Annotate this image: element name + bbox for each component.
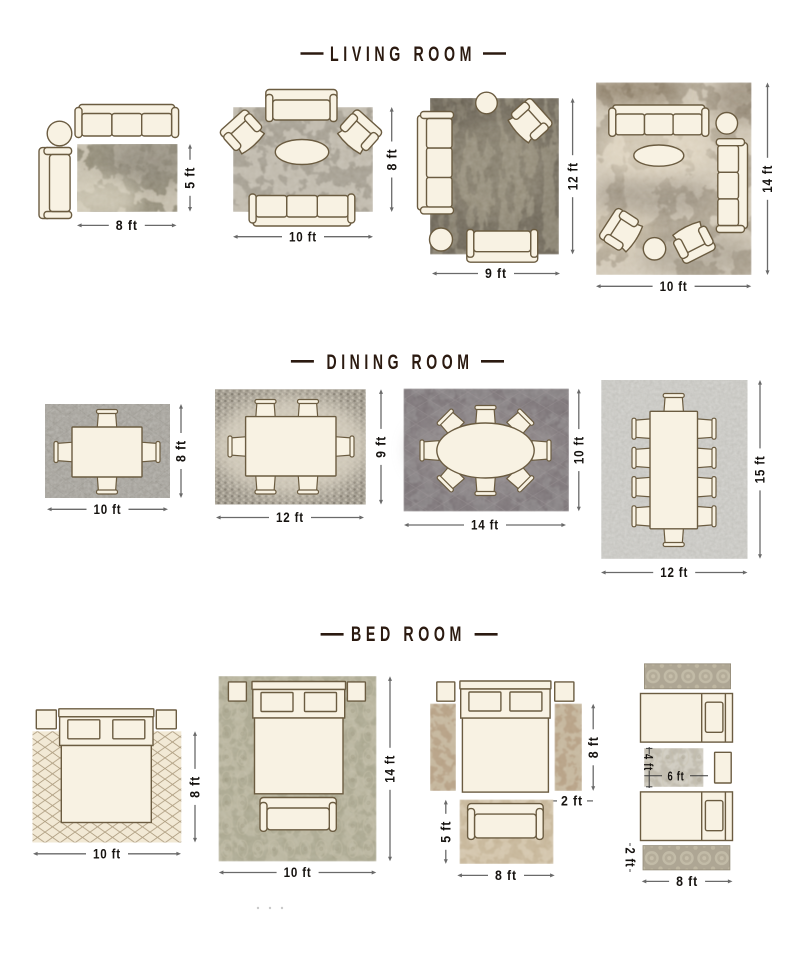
svg-text:8 ft: 8 ft <box>187 776 203 798</box>
svg-text:12 ft: 12 ft <box>276 509 304 525</box>
svg-text:14 ft: 14 ft <box>471 517 499 533</box>
svg-text:8 ft: 8 ft <box>383 149 399 171</box>
svg-text:12 ft: 12 ft <box>660 564 688 580</box>
svg-text:14 ft: 14 ft <box>759 165 775 193</box>
svg-text:DINING ROOM: DINING ROOM <box>327 350 474 374</box>
svg-text:10 ft: 10 ft <box>284 864 312 880</box>
svg-text:8 ft: 8 ft <box>173 440 189 462</box>
svg-text:2 ft: 2 ft <box>561 793 583 809</box>
svg-text:5 ft: 5 ft <box>438 821 454 843</box>
svg-text:10 ft: 10 ft <box>289 228 317 244</box>
svg-text:15 ft: 15 ft <box>752 455 768 483</box>
svg-text:9 ft: 9 ft <box>373 436 389 458</box>
svg-text:14 ft: 14 ft <box>382 755 398 783</box>
svg-text:BED ROOM: BED ROOM <box>351 622 466 646</box>
svg-text:2 ft: 2 ft <box>622 848 638 868</box>
svg-text:10 ft: 10 ft <box>93 846 121 862</box>
svg-text:12 ft: 12 ft <box>564 162 580 190</box>
svg-text:4 ft: 4 ft <box>641 754 655 771</box>
svg-text:LIVING ROOM: LIVING ROOM <box>330 42 476 66</box>
svg-text:10 ft: 10 ft <box>571 436 587 464</box>
svg-text:6 ft: 6 ft <box>668 769 685 783</box>
svg-text:8 ft: 8 ft <box>116 217 138 233</box>
svg-text:10 ft: 10 ft <box>660 278 688 294</box>
svg-text:5 ft: 5 ft <box>182 167 198 189</box>
svg-text:8 ft: 8 ft <box>676 873 698 889</box>
svg-text:10 ft: 10 ft <box>94 501 122 517</box>
svg-text:9 ft: 9 ft <box>485 265 507 281</box>
svg-text:8 ft: 8 ft <box>495 867 517 883</box>
svg-text:8 ft: 8 ft <box>585 736 601 758</box>
